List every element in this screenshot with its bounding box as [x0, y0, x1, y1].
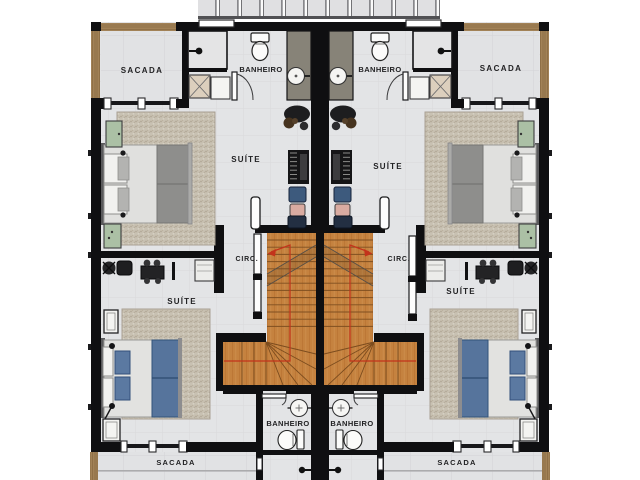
svg-text:SACADA: SACADA	[121, 66, 164, 75]
svg-text:CIRC.: CIRC.	[387, 256, 410, 263]
svg-text:SACADA: SACADA	[480, 64, 523, 73]
svg-text:CIRC.: CIRC.	[235, 256, 258, 263]
svg-text:SUÍTE: SUÍTE	[231, 155, 261, 164]
svg-text:BANHEIRO: BANHEIRO	[358, 65, 401, 74]
svg-text:BANHEIRO: BANHEIRO	[239, 65, 282, 74]
svg-text:SACADA: SACADA	[437, 458, 476, 467]
svg-text:BANHEIRO: BANHEIRO	[266, 419, 309, 428]
svg-text:BANHEIRO: BANHEIRO	[330, 419, 373, 428]
svg-text:SUÍTE: SUÍTE	[446, 287, 476, 296]
svg-text:SACADA: SACADA	[156, 458, 195, 467]
svg-text:SUÍTE: SUÍTE	[167, 297, 197, 306]
svg-text:SUÍTE: SUÍTE	[373, 162, 403, 171]
